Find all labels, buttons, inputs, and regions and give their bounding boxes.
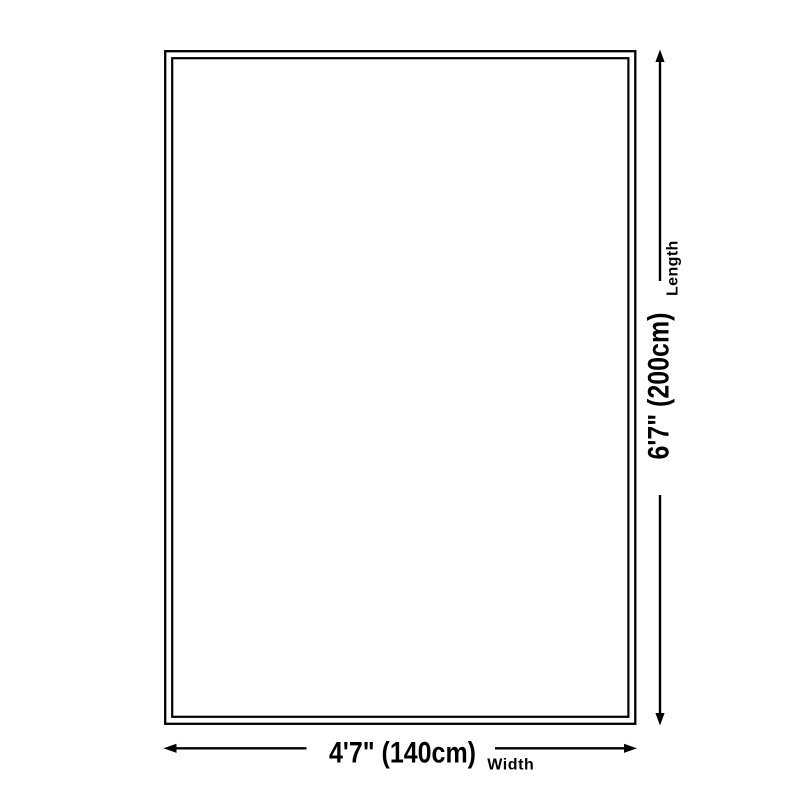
- svg-text:Length: Length: [664, 240, 681, 296]
- svg-text:4'7" (140cm): 4'7" (140cm): [329, 736, 476, 769]
- svg-text:6'7" (200cm): 6'7" (200cm): [642, 313, 675, 460]
- svg-text:Width: Width: [487, 757, 534, 774]
